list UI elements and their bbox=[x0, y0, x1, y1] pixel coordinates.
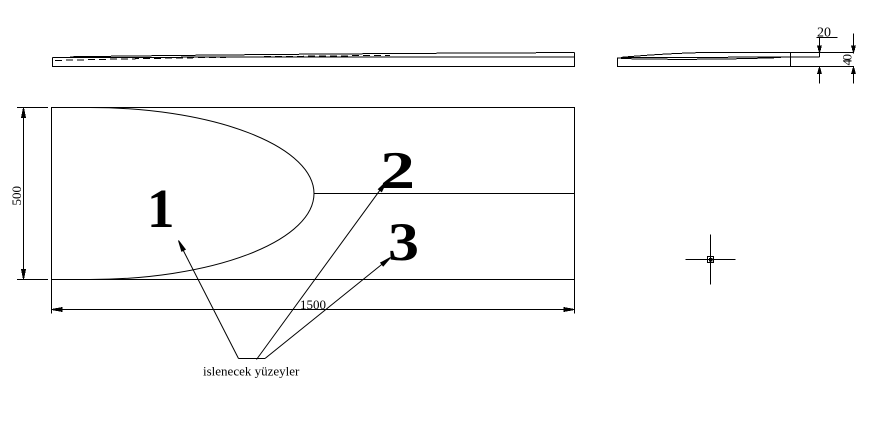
svg-text:20: 20 bbox=[817, 26, 831, 41]
svg-text:1500: 1500 bbox=[300, 297, 326, 312]
svg-text:40: 40 bbox=[840, 55, 855, 66]
svg-text:2: 2 bbox=[380, 142, 415, 200]
svg-text:500: 500 bbox=[9, 186, 24, 206]
svg-text:3: 3 bbox=[388, 212, 419, 272]
svg-text:1: 1 bbox=[147, 178, 175, 239]
svg-text:islenecek yüzeyler: islenecek yüzeyler bbox=[203, 364, 300, 379]
